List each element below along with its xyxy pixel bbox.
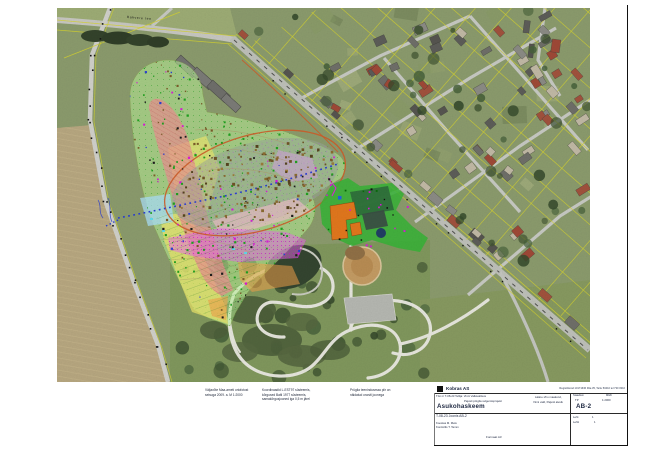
note-line: samakõrgusjooned iga 0,5 m järel <box>262 397 310 402</box>
format-note: Formaat A3 <box>486 435 502 439</box>
tb-divider-v <box>570 393 571 445</box>
title-block: Kobras AS Registrikood 10171636 Riia 35,… <box>434 383 628 446</box>
company-name: Kobras AS <box>446 386 469 391</box>
location-line1: Lääne-Viru maakond, <box>535 395 562 399</box>
map-note-coords: Koordinaadid L-EST97 süsteemis, kõrgused… <box>262 388 310 402</box>
company-logo-icon <box>437 386 443 392</box>
work-number: Töö nr T-08-23 Tellija: Vinni Vallavalit… <box>436 394 486 398</box>
company-info: Registrikood 10171636 Riia 35, Tartu 504… <box>517 387 625 390</box>
tb-border-bottom <box>434 445 627 446</box>
author-line1: Koostas M. Mets <box>436 421 457 425</box>
map-note-boundary: Prügila teenindusmaa piir on näidatud or… <box>350 388 390 397</box>
tb-border-left <box>434 393 435 445</box>
stage-value: TP <box>575 398 579 402</box>
sheets-label: Lehti <box>573 420 579 424</box>
note-line: Koordinaadid L-EST97 süsteemis, <box>262 388 310 393</box>
sheet-border-right <box>627 5 628 446</box>
location-line2: Vinni vald, Pajusti alevik <box>533 400 563 404</box>
author-line2: Kontrollis T. Tamm <box>436 425 459 429</box>
scale-label: Mõõt <box>606 394 612 397</box>
scale-value: 1:2000 <box>602 398 611 402</box>
sheets-value: 1 <box>594 420 596 424</box>
photo-grain <box>57 8 590 382</box>
document-line: T-08-23 Joonis AB-2 <box>436 414 467 418</box>
note-line: Väljavõte Maa-ameti ortofotost <box>205 388 248 393</box>
map-note-ortho: Väljavõte Maa-ameti ortofotost seisuga 2… <box>205 388 248 397</box>
stage-label: Staadium <box>573 394 584 397</box>
drawing-number: AB-2 <box>576 403 591 410</box>
note-line: Prügila teenindusmaa piir on <box>350 388 390 393</box>
drawing-sheet: Rakvere tee Väljavõte Maa-ameti ortofoto… <box>0 0 650 459</box>
note-line: seisuga 2009. a. M 1:2000 <box>205 393 248 398</box>
sheet-value: 1 <box>592 415 594 419</box>
note-line: näidatud oranži joonega <box>350 393 390 398</box>
aerial-photo <box>57 0 650 446</box>
drawing-title: Asukohaskeem <box>437 403 485 410</box>
project-name: Pajusti prügila sulgemisprojekt <box>464 399 502 403</box>
sheet-label: Leht <box>573 415 578 419</box>
